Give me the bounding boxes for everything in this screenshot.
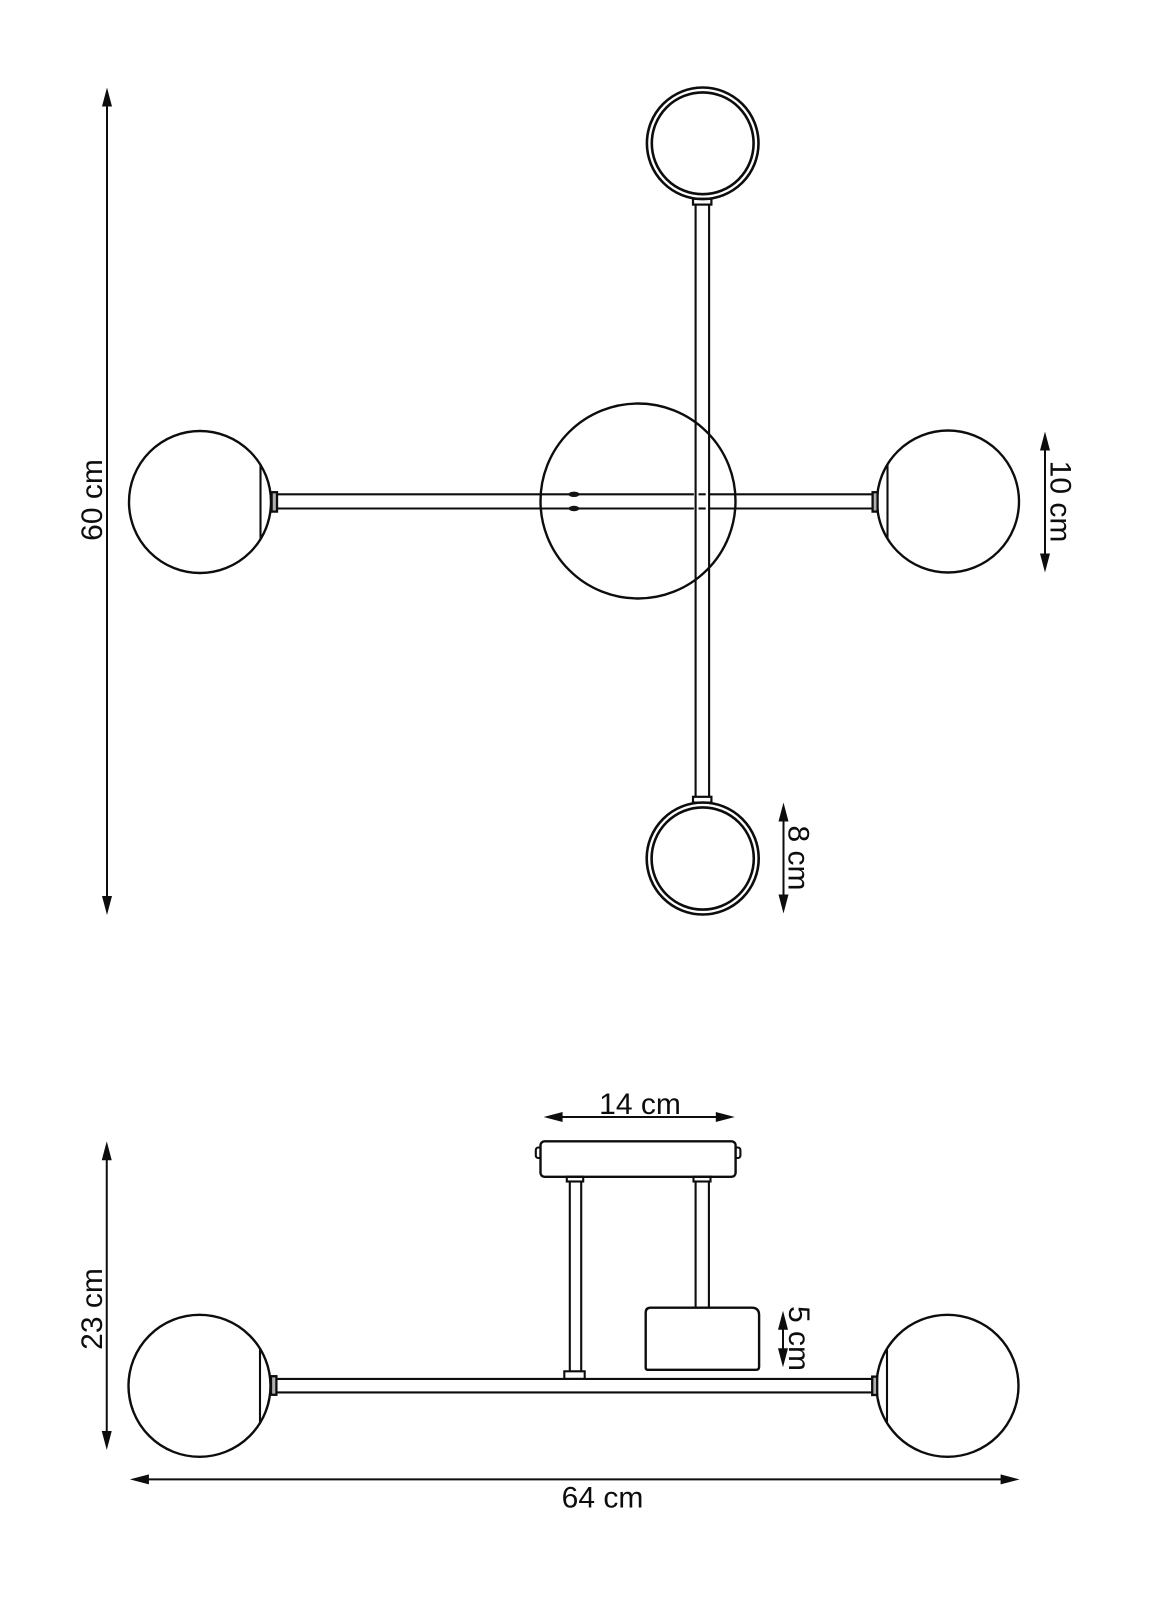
- svg-text:10 cm: 10 cm: [1044, 461, 1077, 543]
- svg-text:64 cm: 64 cm: [562, 1482, 644, 1515]
- svg-text:5 cm: 5 cm: [782, 1306, 815, 1371]
- svg-text:60 cm: 60 cm: [76, 459, 109, 541]
- svg-text:23 cm: 23 cm: [76, 1268, 109, 1350]
- svg-text:8 cm: 8 cm: [782, 825, 815, 890]
- svg-text:14 cm: 14 cm: [599, 1088, 681, 1121]
